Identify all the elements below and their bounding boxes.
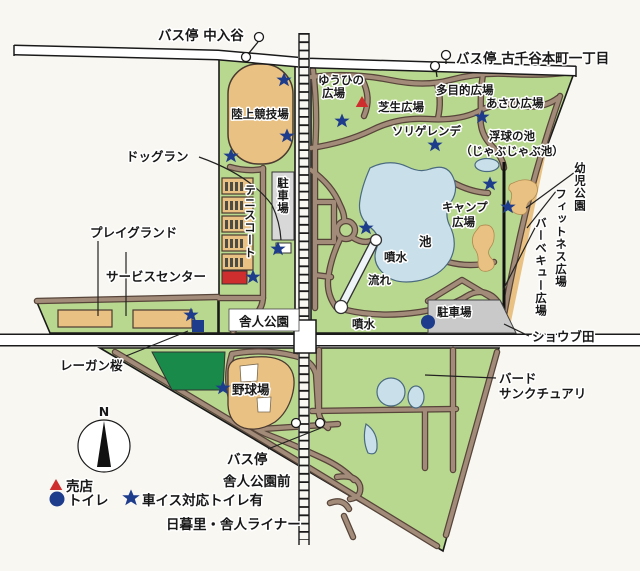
bus-stop-nakairiya-icon [255, 33, 264, 42]
shobu-den-label: ショウブ田 [532, 329, 595, 344]
compass-north-label: N [99, 404, 109, 419]
liner-label: 日暮里・舎人ライナー [166, 516, 301, 533]
fountain-upper-circle [371, 235, 382, 246]
baseball-diamond-1 [240, 364, 258, 382]
ukidama-pond-label-2: （じゃぶじゃぶ池） [460, 144, 564, 158]
camp-plaza-label-2: 広場 [452, 215, 475, 229]
ukidama-pond-label-1: 浮球の池 [489, 129, 535, 143]
legend-wheelchair-label: 車イス対応トイレ有 [142, 492, 263, 509]
bus-stop-toneri-label-2: 舎人公園前 [223, 473, 291, 490]
tamokuteki-plaza-label: 多目的広場 [436, 83, 494, 97]
bird-pond-2 [408, 386, 424, 408]
bus-stop-toneri-label-1: バス停 [227, 451, 268, 468]
shibafu-plaza-label: 芝生広場 [378, 100, 424, 114]
parking-south-label: 駐車場 [437, 305, 472, 319]
railway-liner [299, 33, 309, 545]
pond-label: 池 [419, 234, 432, 249]
fountain-lower-label: 噴水 [352, 317, 375, 331]
tennis-court-label: テニスコート [243, 184, 257, 259]
blue-building-icon [192, 320, 204, 332]
playground-label: プレイグランド [90, 225, 177, 240]
service-center-label: サービスセンター [106, 269, 206, 284]
toneri-park-map: バス停 中入谷 バス停 古千谷本町一丁目 陸上競技場 ドッグラン テニスコート … [0, 0, 640, 571]
camp-plaza-label-1: キャンプ [442, 200, 488, 214]
fitness-plaza-label: フィットネス広場 [554, 188, 568, 288]
bus-stop-toneri-west-icon [292, 419, 301, 428]
bird-sanctuary-label-2: サンクチュアリ [499, 386, 586, 401]
toilet-circle-icon [421, 315, 435, 329]
bus-stop-kojiya-label: バス停 古千谷本町一丁目 [456, 50, 609, 67]
jabujabu-pond [475, 159, 499, 172]
asahi-plaza-label: あさひ広場 [486, 96, 544, 110]
station-name-label: 舎人公園 [239, 314, 289, 329]
yoji-koen-label: 幼児公園 [573, 161, 587, 212]
legend-toilet-icon [50, 492, 65, 507]
legend-toilet-label: トイレ [68, 493, 109, 509]
park-map-page: バス停 中入谷 バス停 古千谷本町一丁目 陸上競技場 ドッグラン テニスコート … [0, 0, 640, 571]
bbq-plaza-label: バーベキュー広場 [534, 217, 548, 317]
stream-label: 流れ [368, 273, 391, 287]
parking-north-label: 駐車場 [276, 176, 290, 214]
bus-stop-kojiya-icon [442, 51, 451, 60]
dog-run-label: ドッグラン [126, 149, 189, 164]
athletics-field-label: 陸上競技場 [231, 107, 289, 121]
fountain-lower-circle [335, 301, 348, 314]
fountain-upper-label: 噴水 [384, 250, 407, 264]
bird-pond-1 [377, 378, 405, 406]
yuhi-plaza-label-2: 広場 [322, 86, 345, 100]
yuhi-plaza-label-1: ゆうひの [318, 73, 364, 87]
bird-sanctuary-label-1: バード [499, 371, 537, 386]
service-center-building [222, 271, 247, 284]
baseball-field-label: 野球場 [232, 382, 270, 397]
baseball-diamond-2 [257, 397, 271, 412]
bus-stop-toneri-east-icon [316, 419, 325, 428]
bus-stop-nakairiya-label: バス停 中入谷 [158, 27, 244, 44]
sori-gelande-label: ソリゲレンデ [392, 124, 461, 138]
reagan-sakura-label: レーガン桜 [60, 358, 123, 373]
